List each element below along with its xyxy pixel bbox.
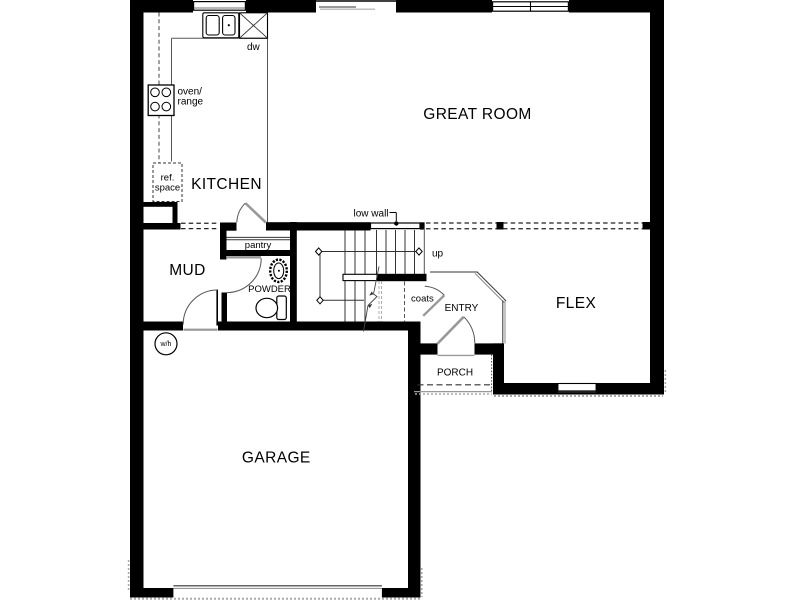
svg-text:dw: dw: [247, 42, 261, 53]
svg-text:POWDER: POWDER: [248, 284, 291, 295]
svg-text:coats: coats: [411, 294, 434, 305]
svg-text:FLEX: FLEX: [556, 295, 597, 312]
svg-text:KITCHEN: KITCHEN: [191, 176, 262, 193]
svg-text:GARAGE: GARAGE: [242, 450, 311, 467]
svg-text:MUD: MUD: [169, 262, 206, 279]
svg-text:pantry: pantry: [245, 240, 272, 251]
svg-text:range: range: [178, 97, 204, 108]
svg-text:w/h: w/h: [160, 341, 172, 348]
svg-text:low wall: low wall: [354, 208, 389, 219]
svg-text:space: space: [155, 183, 180, 194]
svg-text:PORCH: PORCH: [437, 368, 473, 379]
svg-text:GREAT ROOM: GREAT ROOM: [423, 106, 532, 123]
svg-text:up: up: [432, 249, 444, 260]
svg-text:ENTRY: ENTRY: [445, 303, 479, 314]
